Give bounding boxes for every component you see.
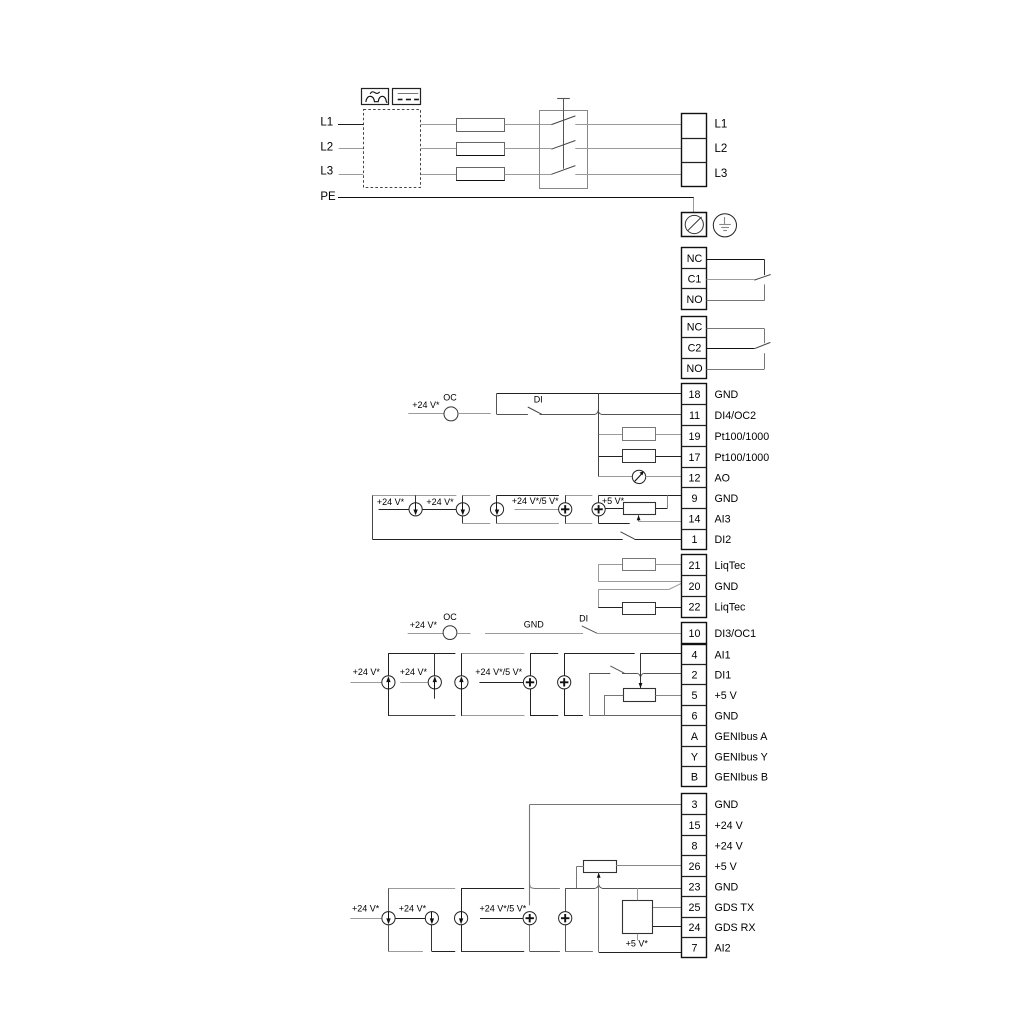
svg-text:DI4/OC2: DI4/OC2 xyxy=(715,410,757,422)
svg-text:GND: GND xyxy=(524,620,545,630)
svg-text:DI3/OC1: DI3/OC1 xyxy=(715,628,757,640)
svg-text:+24 V*: +24 V* xyxy=(377,497,405,507)
svg-text:+24 V*: +24 V* xyxy=(412,400,440,410)
svg-text:17: 17 xyxy=(689,452,701,464)
svg-text:+5 V*: +5 V* xyxy=(626,938,649,948)
svg-text:DI1: DI1 xyxy=(715,669,732,681)
svg-text:GENIbus A: GENIbus A xyxy=(715,731,769,743)
svg-text:L2: L2 xyxy=(715,143,728,155)
svg-text:GND: GND xyxy=(715,711,739,723)
svg-text:DI2: DI2 xyxy=(715,534,732,546)
svg-text:DI: DI xyxy=(579,614,588,624)
svg-text:20: 20 xyxy=(689,581,701,593)
svg-text:10: 10 xyxy=(689,628,701,640)
svg-text:L1: L1 xyxy=(320,116,333,128)
svg-text:8: 8 xyxy=(692,840,698,852)
svg-text:5: 5 xyxy=(692,690,698,702)
svg-text:NC: NC xyxy=(687,253,703,265)
svg-text:AI2: AI2 xyxy=(715,943,731,955)
svg-text:Pt100/1000: Pt100/1000 xyxy=(715,431,770,443)
svg-text:PE: PE xyxy=(320,191,336,203)
svg-text:25: 25 xyxy=(689,902,701,914)
svg-text:+24 V*: +24 V* xyxy=(400,667,428,677)
svg-text:7: 7 xyxy=(692,943,698,955)
svg-text:GDS TX: GDS TX xyxy=(715,902,755,914)
svg-text:L3: L3 xyxy=(715,168,728,180)
svg-text:+24 V: +24 V xyxy=(715,840,744,852)
svg-text:+24 V*/5 V*: +24 V*/5 V* xyxy=(512,496,559,506)
svg-text:GND: GND xyxy=(715,493,739,505)
svg-text:12: 12 xyxy=(689,473,701,485)
svg-text:L2: L2 xyxy=(320,142,333,154)
svg-text:2: 2 xyxy=(692,669,698,681)
svg-text:+24 V: +24 V xyxy=(715,820,744,832)
svg-text:DI: DI xyxy=(534,395,543,405)
svg-text:OC: OC xyxy=(443,393,457,403)
svg-text:11: 11 xyxy=(689,410,700,422)
svg-text:+5 V*: +5 V* xyxy=(602,496,625,506)
svg-text:A: A xyxy=(691,731,699,743)
svg-text:21: 21 xyxy=(689,560,701,572)
svg-text:+5 V: +5 V xyxy=(715,861,738,873)
svg-text:+24 V*: +24 V* xyxy=(353,667,381,677)
svg-text:Pt100/1000: Pt100/1000 xyxy=(715,452,770,464)
svg-text:AO: AO xyxy=(715,473,730,485)
svg-text:Y: Y xyxy=(691,751,698,763)
svg-text:14: 14 xyxy=(689,514,701,526)
svg-text:+24 V*/5 V*: +24 V*/5 V* xyxy=(475,667,522,677)
svg-text:L3: L3 xyxy=(320,166,333,178)
svg-text:GND: GND xyxy=(715,581,739,593)
svg-text:1: 1 xyxy=(692,534,698,546)
svg-text:GND: GND xyxy=(715,799,739,811)
svg-text:GENIbus Y: GENIbus Y xyxy=(715,751,768,763)
svg-text:6: 6 xyxy=(692,711,698,723)
svg-text:+24 V*: +24 V* xyxy=(352,904,380,914)
svg-text:+24 V*: +24 V* xyxy=(426,497,454,507)
svg-text:3: 3 xyxy=(692,799,698,811)
svg-text:+24 V*/5 V*: +24 V*/5 V* xyxy=(480,904,527,914)
svg-text:C2: C2 xyxy=(688,343,702,355)
svg-text:+24 V*: +24 V* xyxy=(399,904,427,914)
svg-text:B: B xyxy=(691,772,698,784)
svg-text:19: 19 xyxy=(689,431,701,443)
svg-text:NO: NO xyxy=(686,363,702,375)
svg-text:LiqTec: LiqTec xyxy=(715,560,747,572)
svg-text:4: 4 xyxy=(692,649,698,661)
svg-text:LiqTec: LiqTec xyxy=(715,602,747,614)
svg-text:AI1: AI1 xyxy=(715,649,731,661)
svg-text:+24 V*: +24 V* xyxy=(410,620,438,630)
svg-text:24: 24 xyxy=(689,922,701,934)
svg-text:9: 9 xyxy=(692,493,698,505)
svg-text:C1: C1 xyxy=(688,273,702,285)
svg-text:26: 26 xyxy=(689,861,701,873)
svg-text:15: 15 xyxy=(689,820,701,832)
svg-text:L1: L1 xyxy=(715,118,728,130)
svg-text:GENIbus B: GENIbus B xyxy=(715,772,768,784)
svg-text:GND: GND xyxy=(715,881,739,893)
svg-text:GND: GND xyxy=(715,389,739,401)
svg-text:+5 V: +5 V xyxy=(715,690,738,702)
svg-text:22: 22 xyxy=(689,602,701,614)
svg-text:AI3: AI3 xyxy=(715,514,731,526)
svg-text:OC: OC xyxy=(443,612,457,622)
svg-text:18: 18 xyxy=(689,389,701,401)
svg-text:23: 23 xyxy=(689,881,701,893)
svg-text:GDS RX: GDS RX xyxy=(715,922,756,934)
svg-text:NO: NO xyxy=(686,294,702,306)
svg-text:NC: NC xyxy=(687,322,703,334)
